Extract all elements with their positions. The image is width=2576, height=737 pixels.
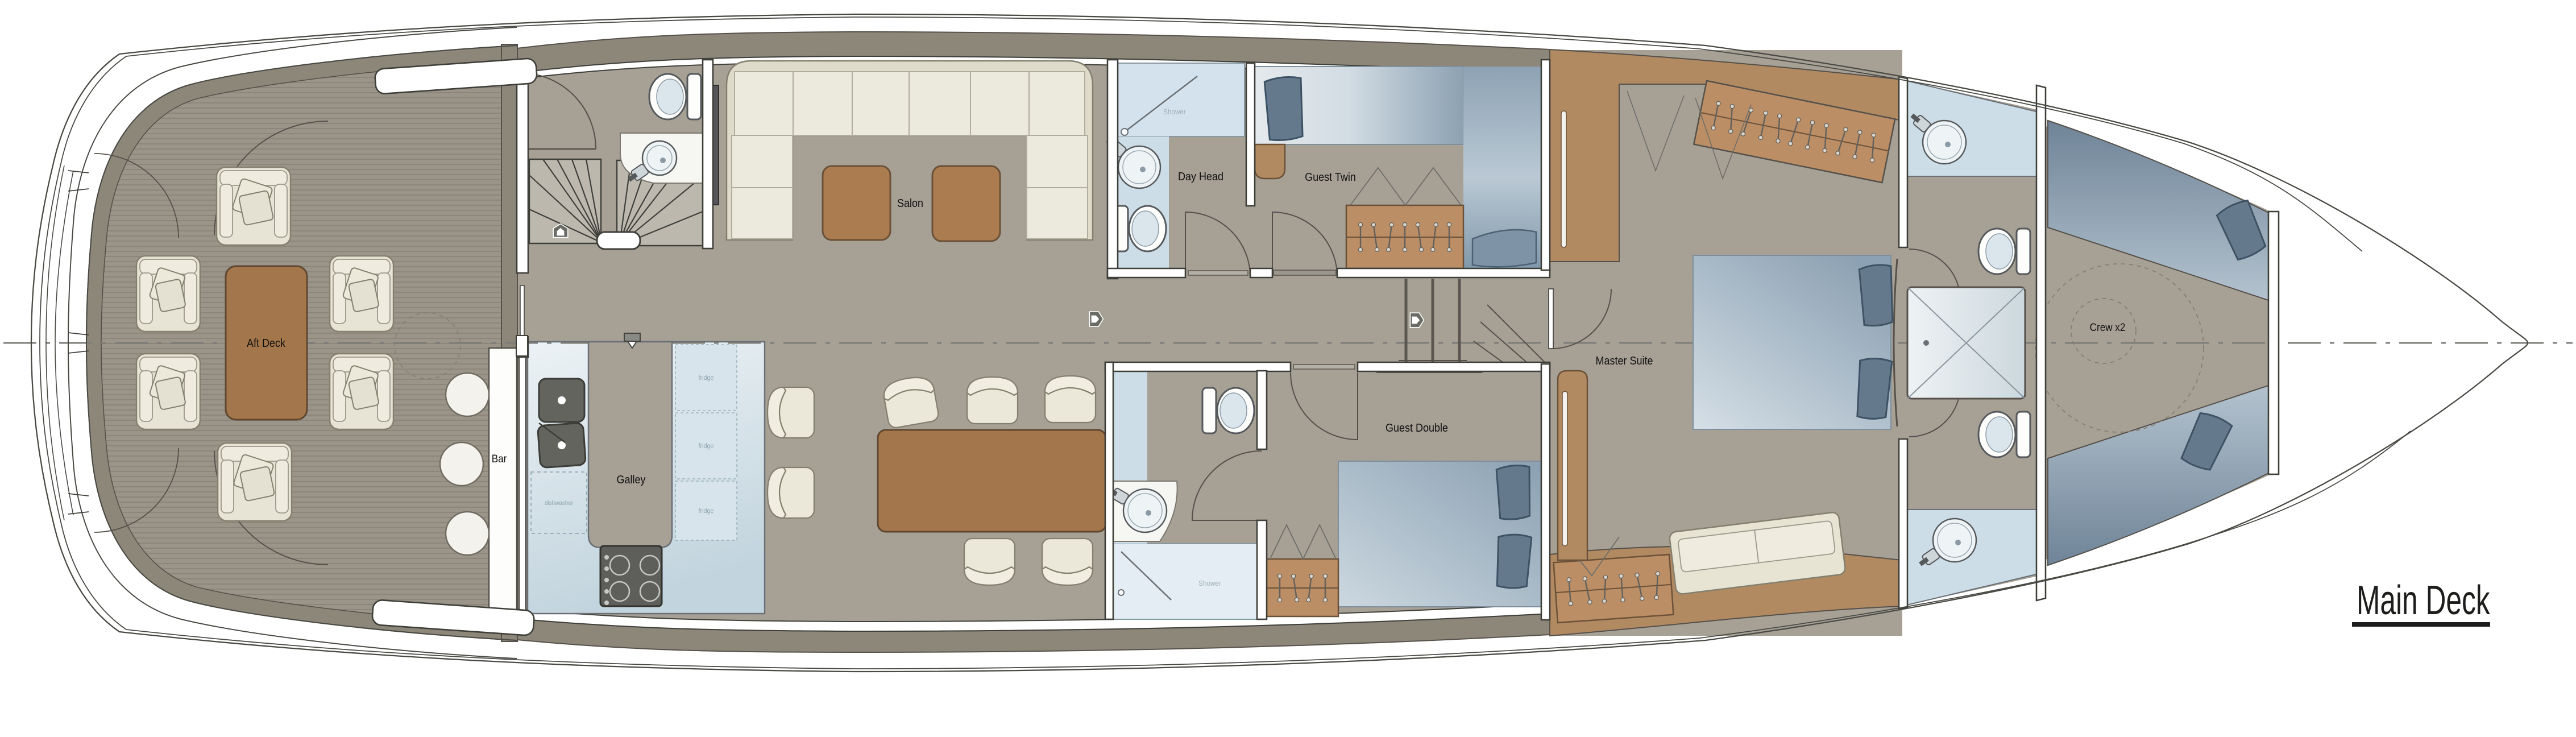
- svg-text:Bar: Bar: [492, 453, 507, 465]
- svg-text:Salon: Salon: [897, 197, 923, 210]
- svg-text:dishwasher: dishwasher: [545, 500, 574, 507]
- svg-text:fridge: fridge: [698, 508, 714, 515]
- svg-text:Main Deck: Main Deck: [2357, 578, 2490, 623]
- svg-text:Crew x2: Crew x2: [2090, 321, 2126, 333]
- svg-text:Aft Deck: Aft Deck: [247, 337, 285, 350]
- svg-text:Guest Double: Guest Double: [1386, 422, 1448, 434]
- svg-text:Guest Twin: Guest Twin: [1305, 171, 1356, 184]
- svg-text:fridge: fridge: [698, 443, 714, 450]
- svg-text:Galley: Galley: [617, 474, 646, 486]
- svg-text:fridge: fridge: [698, 375, 714, 382]
- svg-text:Master Suite: Master Suite: [1596, 355, 1653, 367]
- svg-text:Shower: Shower: [1198, 579, 1221, 587]
- svg-text:Day Head: Day Head: [1178, 171, 1223, 183]
- svg-text:Shower: Shower: [1163, 107, 1186, 116]
